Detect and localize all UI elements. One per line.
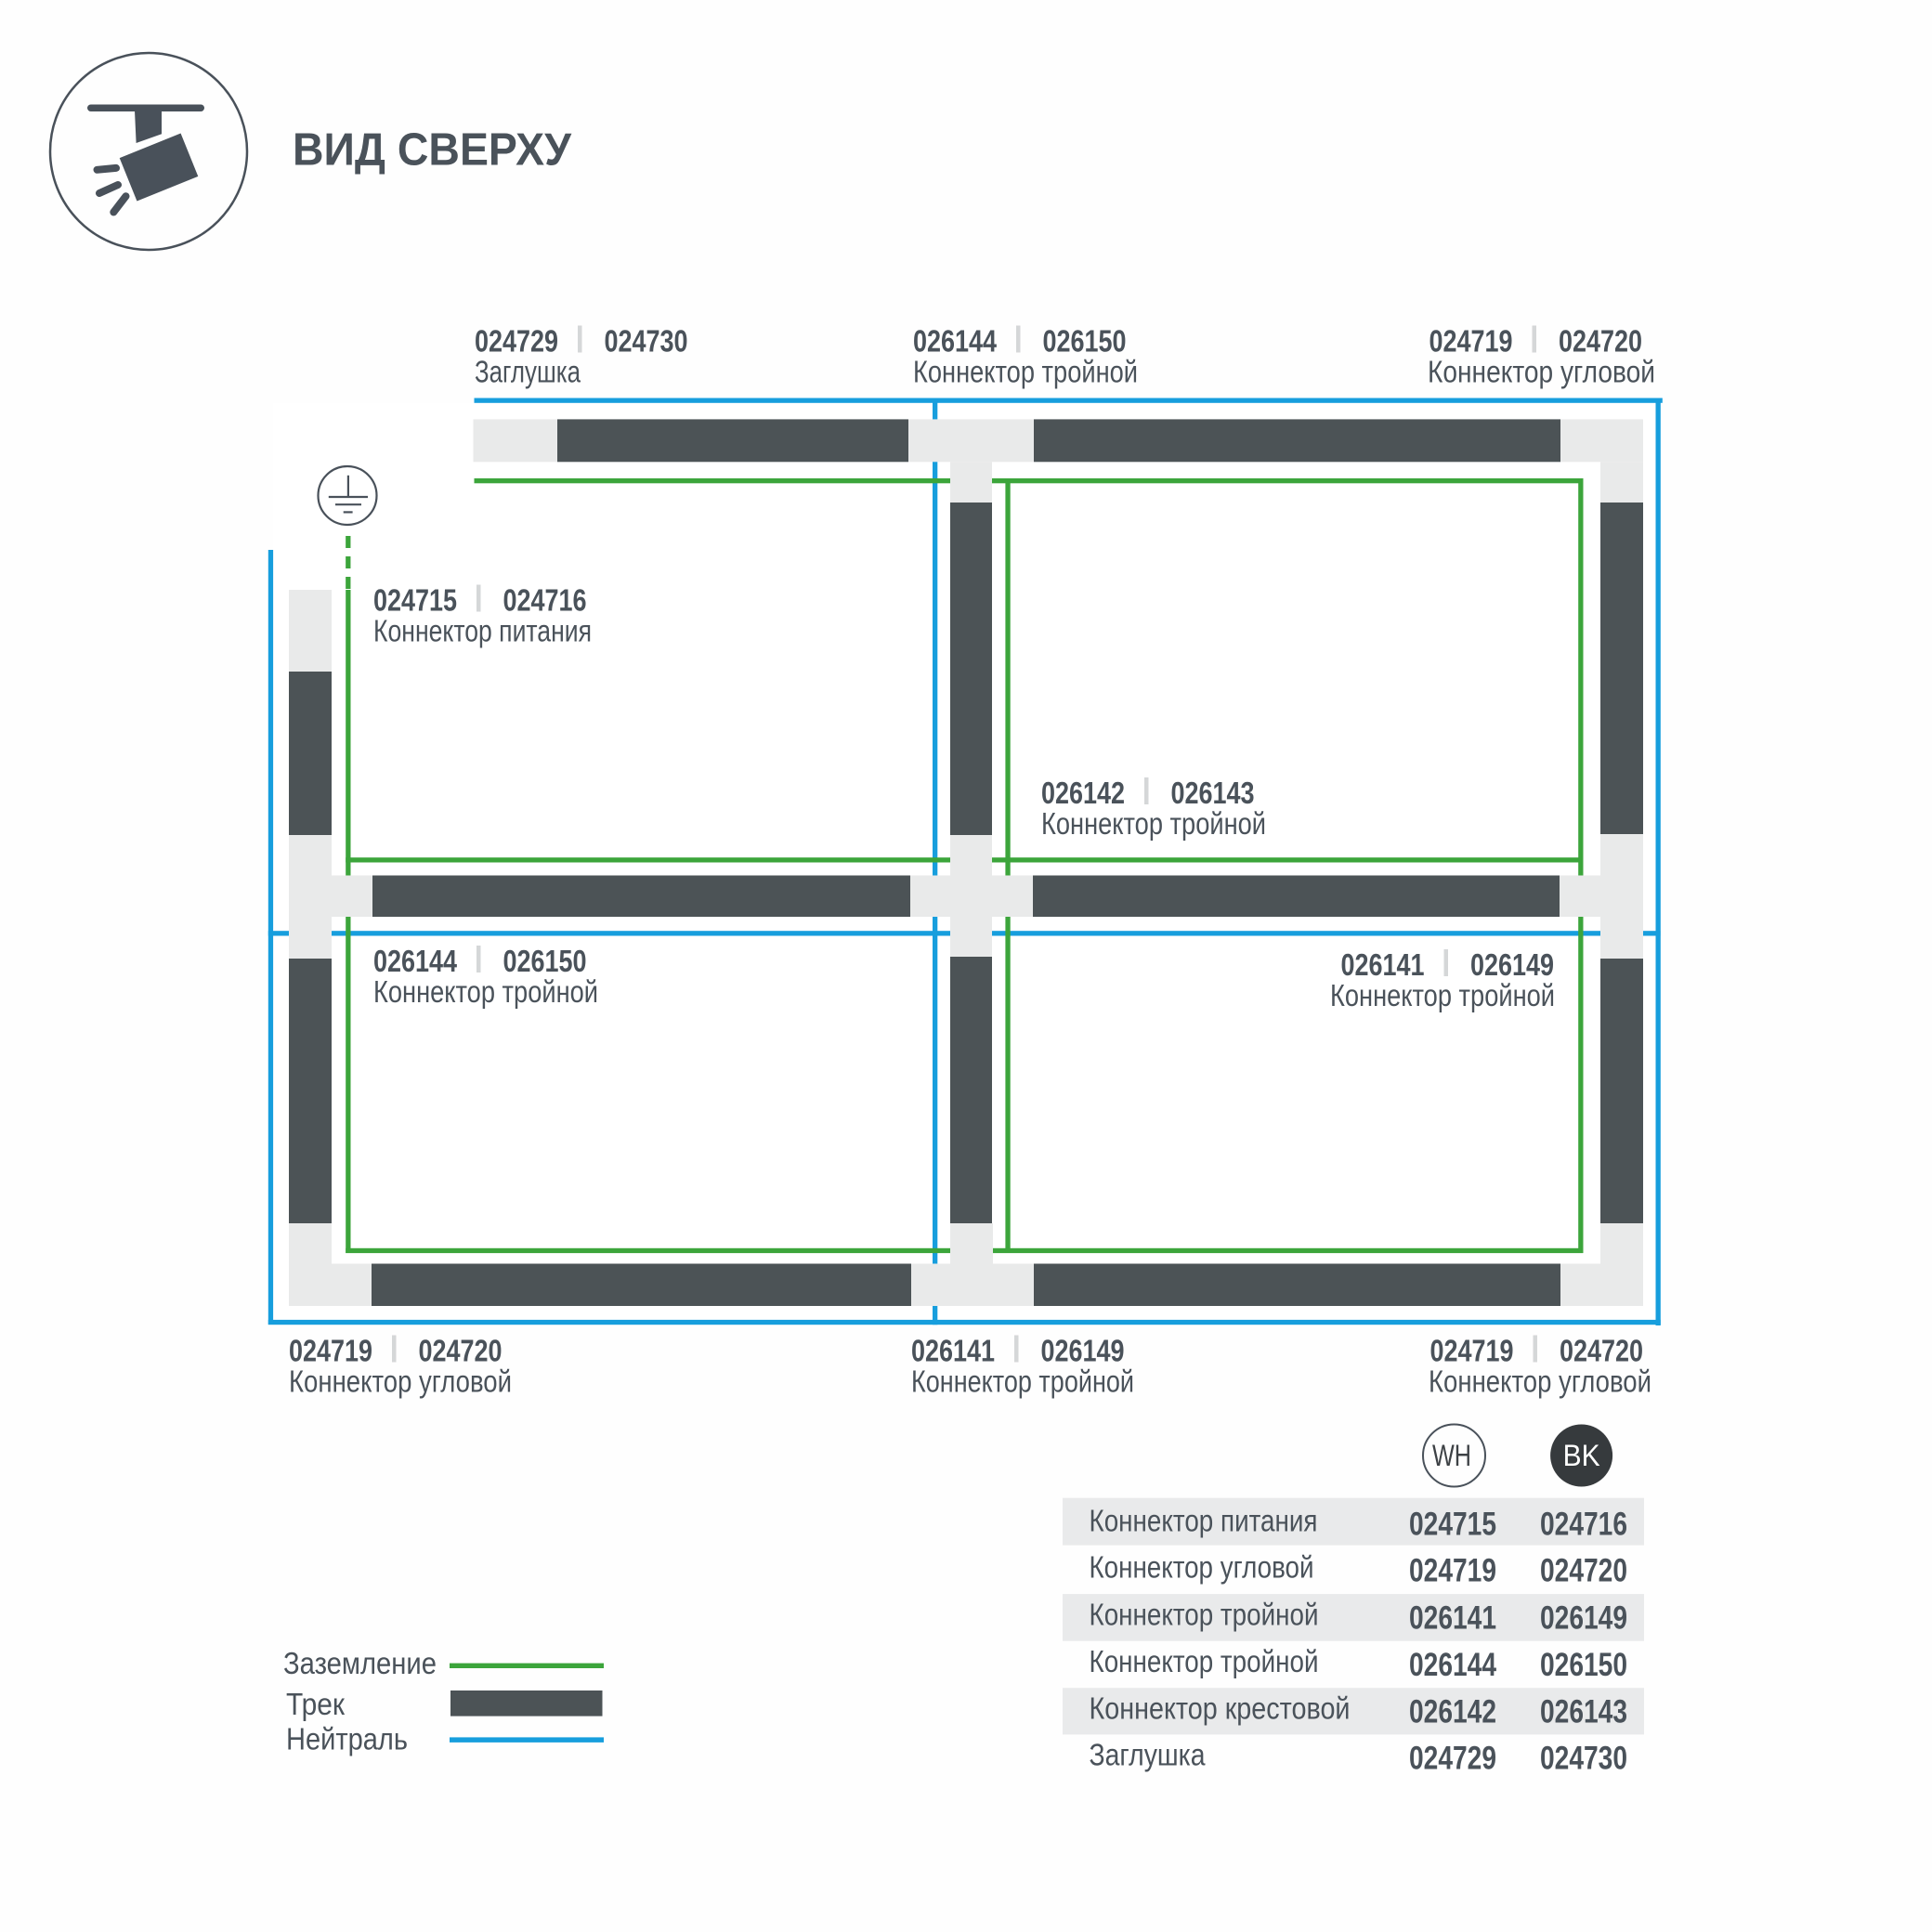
svg-text:026144: 026144 — [373, 944, 458, 978]
svg-text:024729: 024729 — [1409, 1740, 1496, 1777]
svg-text:026141: 026141 — [1341, 947, 1425, 982]
svg-text:Коннектор угловой: Коннектор угловой — [1428, 355, 1655, 389]
svg-text:Коннектор тройной: Коннектор тройной — [913, 355, 1138, 389]
svg-text:WH: WH — [1432, 1439, 1471, 1472]
svg-text:Коннектор питания: Коннектор питания — [1090, 1504, 1318, 1538]
svg-text:024730: 024730 — [1540, 1740, 1627, 1777]
svg-text:026141: 026141 — [1409, 1599, 1496, 1636]
svg-text:BK: BK — [1563, 1439, 1600, 1472]
svg-text:Коннектор крестовой: Коннектор крестовой — [1090, 1691, 1351, 1726]
svg-text:024719: 024719 — [289, 1334, 372, 1368]
svg-text:024716: 024716 — [1540, 1506, 1627, 1543]
svg-text:Коннектор тройной: Коннектор тройной — [1041, 806, 1266, 841]
svg-text:Коннектор тройной: Коннектор тройной — [1090, 1597, 1319, 1631]
svg-text:024719: 024719 — [1429, 324, 1513, 359]
svg-text:026143: 026143 — [1540, 1693, 1627, 1730]
svg-text:Трек: Трек — [286, 1687, 346, 1721]
svg-text:024730: 024730 — [605, 324, 688, 359]
svg-text:Коннектор угловой: Коннектор угловой — [1090, 1549, 1314, 1584]
svg-text:024720: 024720 — [419, 1334, 503, 1368]
svg-text:Заглушка: Заглушка — [1090, 1738, 1207, 1772]
svg-text:026150: 026150 — [1043, 324, 1127, 359]
svg-text:026150: 026150 — [1540, 1646, 1627, 1683]
svg-text:024719: 024719 — [1430, 1334, 1514, 1368]
svg-text:024716: 024716 — [503, 583, 587, 618]
svg-text:Коннектор питания: Коннектор питания — [373, 614, 592, 648]
svg-text:024719: 024719 — [1409, 1551, 1496, 1588]
svg-text:024715: 024715 — [373, 583, 457, 618]
svg-text:026143: 026143 — [1171, 776, 1255, 810]
svg-text:026144: 026144 — [1409, 1646, 1496, 1683]
svg-text:Нейтраль: Нейтраль — [286, 1722, 408, 1756]
svg-text:Коннектор угловой: Коннектор угловой — [289, 1364, 512, 1399]
svg-text:ВИД СВЕРХУ: ВИД СВЕРХУ — [293, 124, 572, 176]
svg-text:026149: 026149 — [1540, 1599, 1627, 1636]
svg-text:026149: 026149 — [1470, 947, 1554, 982]
svg-text:Коннектор тройной: Коннектор тройной — [1330, 978, 1555, 1012]
svg-text:Коннектор тройной: Коннектор тройной — [911, 1364, 1134, 1399]
svg-text:Коннектор тройной: Коннектор тройной — [373, 974, 598, 1009]
svg-text:026142: 026142 — [1041, 776, 1125, 810]
svg-text:024715: 024715 — [1409, 1506, 1496, 1543]
svg-text:024720: 024720 — [1540, 1551, 1627, 1588]
svg-text:Заглушка: Заглушка — [475, 355, 581, 389]
svg-text:026141: 026141 — [911, 1334, 995, 1368]
svg-text:024729: 024729 — [475, 324, 558, 359]
svg-text:Заземление: Заземление — [283, 1646, 437, 1680]
svg-text:Коннектор угловой: Коннектор угловой — [1429, 1364, 1651, 1399]
svg-text:024720: 024720 — [1559, 324, 1642, 359]
svg-text:Коннектор тройной: Коннектор тройной — [1090, 1644, 1319, 1678]
svg-text:026149: 026149 — [1041, 1334, 1125, 1368]
svg-text:026142: 026142 — [1409, 1693, 1496, 1730]
svg-text:026144: 026144 — [913, 324, 998, 359]
svg-text:026150: 026150 — [503, 944, 587, 978]
svg-text:024720: 024720 — [1560, 1334, 1643, 1368]
